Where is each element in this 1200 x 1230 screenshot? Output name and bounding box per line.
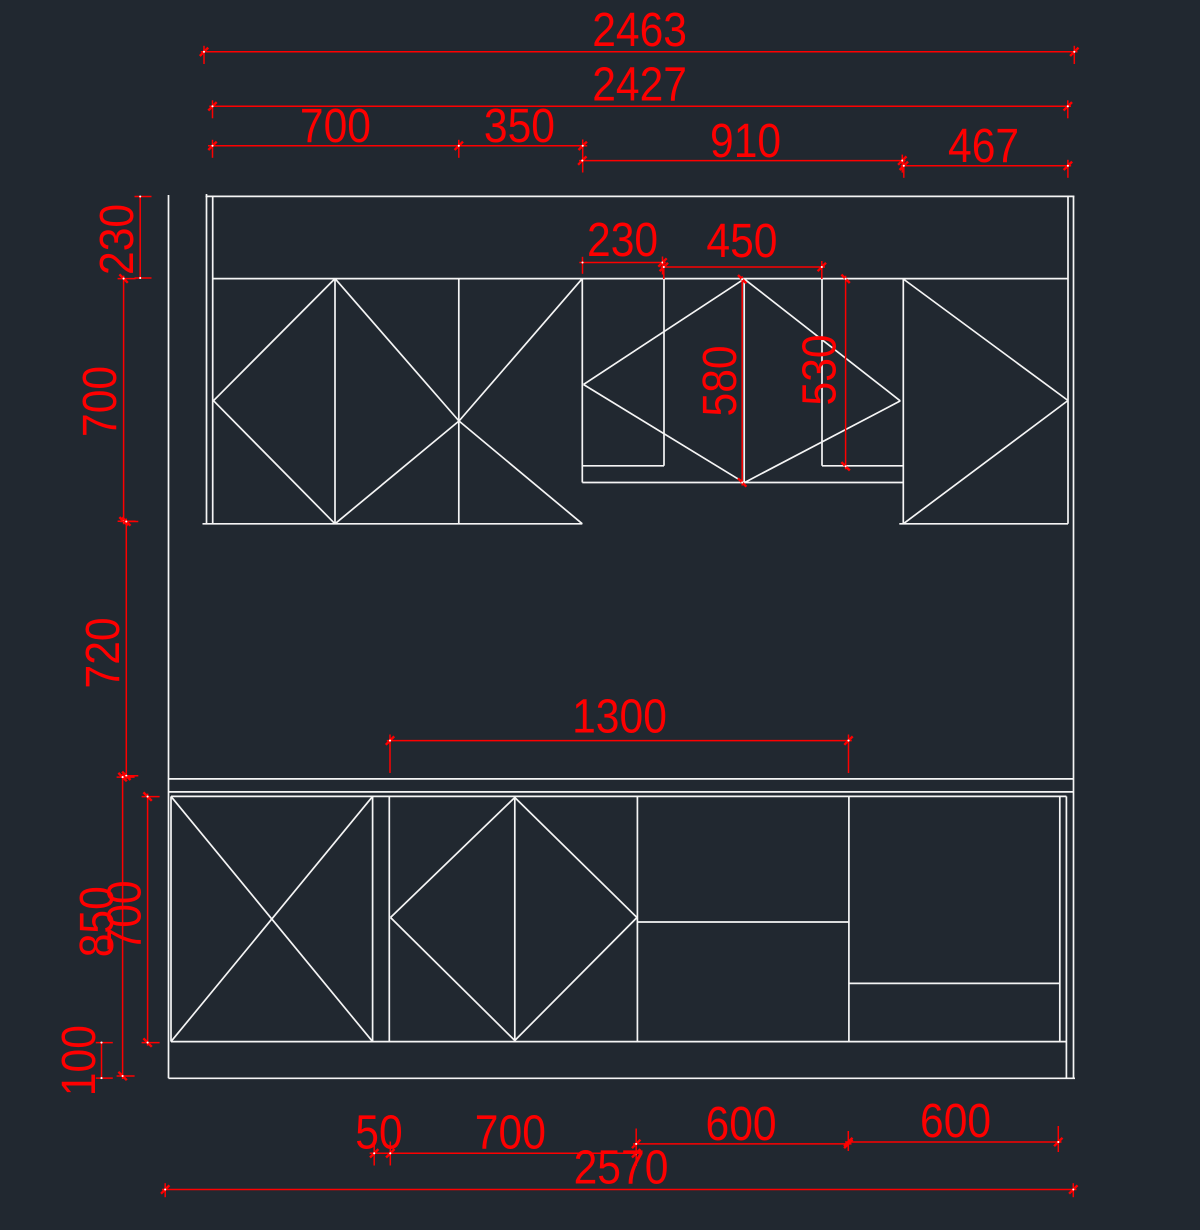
svg-text:2427: 2427 bbox=[592, 59, 687, 112]
svg-text:230: 230 bbox=[91, 204, 144, 275]
svg-text:700: 700 bbox=[300, 100, 371, 153]
svg-text:350: 350 bbox=[484, 100, 555, 153]
svg-text:2463: 2463 bbox=[592, 4, 687, 57]
svg-text:700: 700 bbox=[475, 1106, 546, 1159]
svg-text:50: 50 bbox=[355, 1106, 402, 1159]
svg-text:720: 720 bbox=[77, 617, 130, 688]
svg-text:2570: 2570 bbox=[574, 1141, 669, 1194]
svg-text:700: 700 bbox=[99, 880, 152, 951]
svg-text:600: 600 bbox=[920, 1095, 991, 1148]
svg-text:467: 467 bbox=[948, 120, 1019, 173]
svg-text:910: 910 bbox=[710, 115, 781, 168]
svg-text:230: 230 bbox=[587, 214, 658, 267]
svg-text:1300: 1300 bbox=[572, 691, 667, 744]
svg-text:100: 100 bbox=[53, 1025, 106, 1096]
svg-text:600: 600 bbox=[706, 1098, 777, 1151]
svg-text:580: 580 bbox=[694, 345, 747, 416]
svg-text:530: 530 bbox=[794, 334, 847, 405]
svg-text:700: 700 bbox=[74, 366, 127, 437]
svg-text:450: 450 bbox=[706, 215, 777, 268]
